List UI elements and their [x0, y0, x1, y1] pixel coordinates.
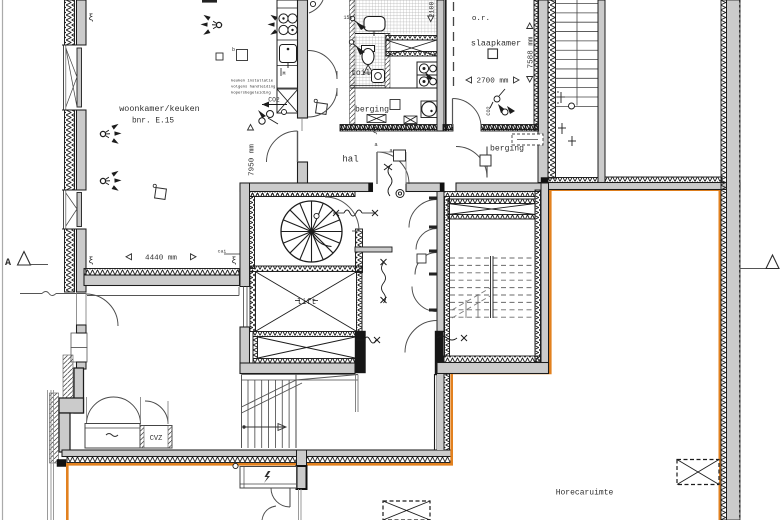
svg-text:b: b — [232, 47, 235, 53]
svg-text:ξ: ξ — [88, 256, 93, 266]
svg-text:15b: 15b — [343, 15, 352, 21]
svg-text:lift: lift — [297, 297, 317, 307]
svg-text:berging: berging — [490, 145, 524, 154]
svg-text:keuken installatie: keuken installatie — [231, 79, 274, 84]
svg-text:hal: hal — [342, 155, 358, 165]
svg-text:woonkamer/keuken: woonkamer/keuken — [119, 104, 199, 114]
svg-text:cai: cai — [218, 249, 227, 255]
svg-text:4440 mm: 4440 mm — [145, 255, 177, 263]
svg-text:o.r.: o.r. — [472, 15, 490, 23]
svg-text:berging: berging — [355, 106, 389, 115]
svg-text:A: A — [5, 258, 11, 269]
svg-text:bnr. E.15: bnr. E.15 — [132, 118, 174, 126]
svg-text:ξ: ξ — [231, 256, 236, 266]
svg-text:kopersbegeleiding: kopersbegeleiding — [231, 91, 271, 96]
svg-text:7950 mm: 7950 mm — [249, 144, 257, 176]
svg-text:CO2: CO2 — [486, 106, 492, 115]
svg-text:ξ: ξ — [88, 13, 93, 23]
svg-text:CVZ: CVZ — [150, 435, 163, 443]
svg-text:2700 mm: 2700 mm — [477, 78, 509, 86]
svg-text:2100: 2100 — [429, 2, 436, 18]
svg-text:volgens handleiding: volgens handleiding — [231, 85, 275, 90]
svg-text:CO2: CO2 — [268, 97, 280, 104]
svg-text:Horecaruimte: Horecaruimte — [556, 489, 614, 498]
svg-text:M: M — [282, 71, 285, 77]
svg-text:slaapkamer: slaapkamer — [471, 39, 521, 49]
